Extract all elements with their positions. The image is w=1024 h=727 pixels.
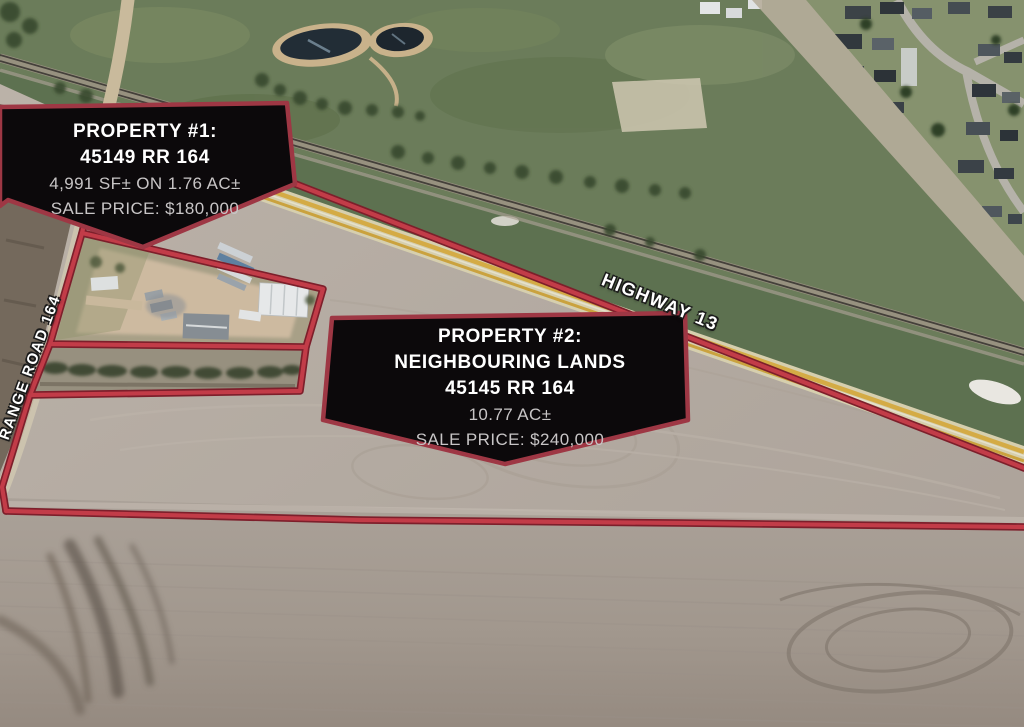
shelterbelt	[30, 346, 306, 393]
callout-property2: PROPERTY #2: NEIGHBOURING LANDS 45145 RR…	[332, 324, 688, 452]
property1-address: 45149 RR 164	[0, 145, 290, 171]
property1-title: PROPERTY #1:	[0, 119, 290, 145]
property2-title: PROPERTY #2:	[332, 324, 688, 350]
property2-subtitle: NEIGHBOURING LANDS	[332, 350, 688, 376]
property2-size: 10.77 AC±	[332, 402, 688, 427]
property2-address: 45145 RR 164	[332, 376, 688, 402]
property2-price: SALE PRICE: $240,000	[332, 427, 688, 452]
callout-property1: PROPERTY #1: 45149 RR 164 4,991 SF± ON 1…	[0, 119, 290, 221]
property1-size: 4,991 SF± ON 1.76 AC±	[0, 171, 290, 196]
aerial-listing-image: PROPERTY #1: 45149 RR 164 4,991 SF± ON 1…	[0, 0, 1024, 727]
property1-price: SALE PRICE: $180,000	[0, 196, 290, 221]
